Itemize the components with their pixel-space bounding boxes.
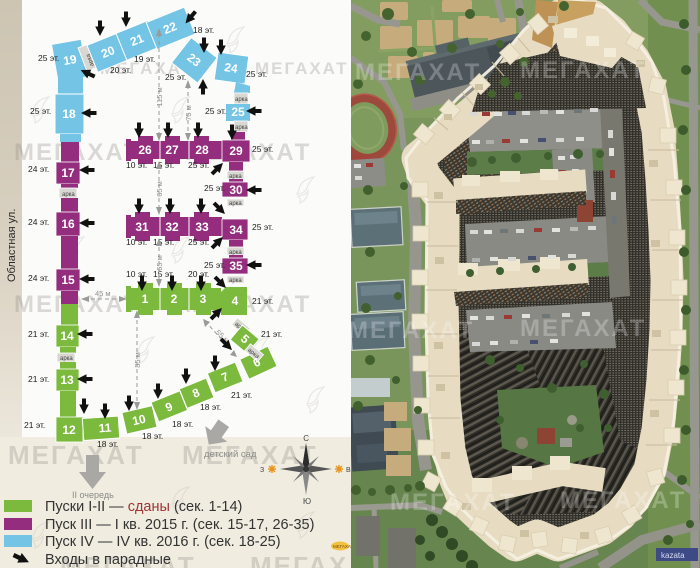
svg-text:МЕГАХАТ: МЕГАХАТ <box>348 317 474 344</box>
svg-text:24 эт.: 24 эт. <box>28 273 49 283</box>
svg-text:65 м: 65 м <box>155 255 164 271</box>
svg-text:25 эт.: 25 эт. <box>30 106 51 116</box>
svg-text:24: 24 <box>223 60 238 76</box>
svg-text:21 эт.: 21 эт. <box>24 420 45 430</box>
svg-text:25 эт.: 25 эт. <box>188 160 209 170</box>
svg-text:18 эт.: 18 эт. <box>142 431 163 441</box>
svg-text:13: 13 <box>60 373 74 387</box>
svg-text:10 эт.: 10 эт. <box>126 237 147 247</box>
svg-text:85 м: 85 м <box>133 352 142 368</box>
svg-text:26: 26 <box>138 143 152 157</box>
svg-text:19 эт.: 19 эт. <box>134 54 155 64</box>
svg-text:75 м: 75 м <box>184 105 193 121</box>
svg-text:31: 31 <box>135 220 149 234</box>
svg-text:34: 34 <box>229 223 243 237</box>
svg-text:25 эт.: 25 эт. <box>38 53 59 63</box>
svg-text:4: 4 <box>232 294 239 308</box>
svg-text:10 эт.: 10 эт. <box>126 269 147 279</box>
svg-text:25: 25 <box>231 105 245 119</box>
svg-text:18: 18 <box>62 107 76 121</box>
svg-text:18 эт.: 18 эт. <box>97 439 118 449</box>
svg-text:МЕГАХАТ: МЕГАХАТ <box>560 487 686 514</box>
svg-text:18 эт.: 18 эт. <box>200 402 221 412</box>
svg-text:19: 19 <box>62 52 78 68</box>
svg-text:25 эт.: 25 эт. <box>188 237 209 247</box>
svg-text:детский сад: детский сад <box>204 449 257 460</box>
svg-text:35: 35 <box>229 259 243 273</box>
svg-text:11: 11 <box>98 421 112 436</box>
svg-text:3: 3 <box>200 292 207 306</box>
svg-text:МЕГАХАТ: МЕГАХАТ <box>333 544 354 549</box>
svg-text:арка: арка <box>235 125 248 131</box>
svg-text:16: 16 <box>61 217 75 231</box>
svg-text:18 эт.: 18 эт. <box>193 25 214 35</box>
svg-text:Ю: Ю <box>303 497 311 506</box>
svg-text:З: З <box>260 467 264 474</box>
svg-text:МЕГАХАТ: МЕГАХАТ <box>8 440 144 470</box>
svg-text:21 эт.: 21 эт. <box>261 329 282 339</box>
svg-text:28: 28 <box>195 143 209 157</box>
svg-text:2: 2 <box>171 292 178 306</box>
svg-text:10 эт.: 10 эт. <box>126 160 147 170</box>
svg-text:21 эт.: 21 эт. <box>252 296 273 306</box>
svg-text:арка: арка <box>62 192 75 198</box>
svg-text:арка: арка <box>235 97 248 103</box>
svg-text:Пуск III — I кв. 2015 г. (сек.: Пуск III — I кв. 2015 г. (сек. 15-17, 26… <box>45 517 314 533</box>
svg-text:15: 15 <box>61 273 75 287</box>
svg-text:18 эт.: 18 эт. <box>172 419 193 429</box>
svg-text:МЕГАХАТ: МЕГАХАТ <box>355 59 481 86</box>
svg-text:25 эт.: 25 эт. <box>205 106 226 116</box>
svg-text:20 эт.: 20 эт. <box>188 269 209 279</box>
svg-text:32: 32 <box>165 220 179 234</box>
svg-text:30: 30 <box>229 183 243 197</box>
svg-text:Пуск IV — IV кв. 2016 г. (сек.: Пуск IV — IV кв. 2016 г. (сек. 18-25) <box>45 534 281 550</box>
svg-text:115 м: 115 м <box>155 87 164 106</box>
svg-text:24 эт.: 24 эт. <box>28 217 49 227</box>
svg-text:12: 12 <box>62 423 76 437</box>
svg-text:Входы в парадные: Входы в парадные <box>45 552 171 568</box>
svg-text:25 эт.: 25 эт. <box>204 183 225 193</box>
svg-text:17: 17 <box>61 166 75 180</box>
svg-text:арка: арка <box>60 356 73 362</box>
svg-text:25 эт.: 25 эт. <box>165 72 186 82</box>
svg-text:МЕГАХАТ: МЕГАХАТ <box>390 489 516 516</box>
svg-text:25 эт.: 25 эт. <box>246 69 267 79</box>
svg-text:В: В <box>346 467 351 474</box>
svg-text:арка: арка <box>229 278 242 284</box>
svg-text:45 м: 45 м <box>95 289 111 298</box>
svg-text:25 эт.: 25 эт. <box>252 222 273 232</box>
svg-text:25 эт.: 25 эт. <box>252 144 273 154</box>
svg-text:МЕГАХАТ: МЕГАХАТ <box>520 57 646 84</box>
svg-text:1: 1 <box>142 292 149 306</box>
svg-text:Областная ул.: Областная ул. <box>6 209 18 282</box>
svg-text:МЕГАХАТ: МЕГАХАТ <box>520 315 646 342</box>
svg-text:kazata: kazata <box>661 551 685 560</box>
svg-text:14: 14 <box>60 329 74 343</box>
svg-text:20 эт.: 20 эт. <box>110 65 131 75</box>
svg-text:Пуски I-II — сданы (сек. 1-14): Пуски I-II — сданы (сек. 1-14) <box>45 499 242 515</box>
svg-text:33: 33 <box>195 220 209 234</box>
svg-text:21 эт.: 21 эт. <box>28 329 49 339</box>
svg-text:МЕГАХАТ: МЕГАХАТ <box>255 59 349 78</box>
svg-text:С: С <box>303 434 309 443</box>
svg-text:65 м: 65 м <box>155 181 164 197</box>
svg-text:21 эт.: 21 эт. <box>231 390 252 400</box>
svg-text:29: 29 <box>229 144 243 158</box>
svg-text:21 эт.: 21 эт. <box>28 374 49 384</box>
svg-text:24 эт.: 24 эт. <box>28 164 49 174</box>
svg-text:27: 27 <box>165 143 179 157</box>
svg-text:арка: арка <box>229 201 242 207</box>
